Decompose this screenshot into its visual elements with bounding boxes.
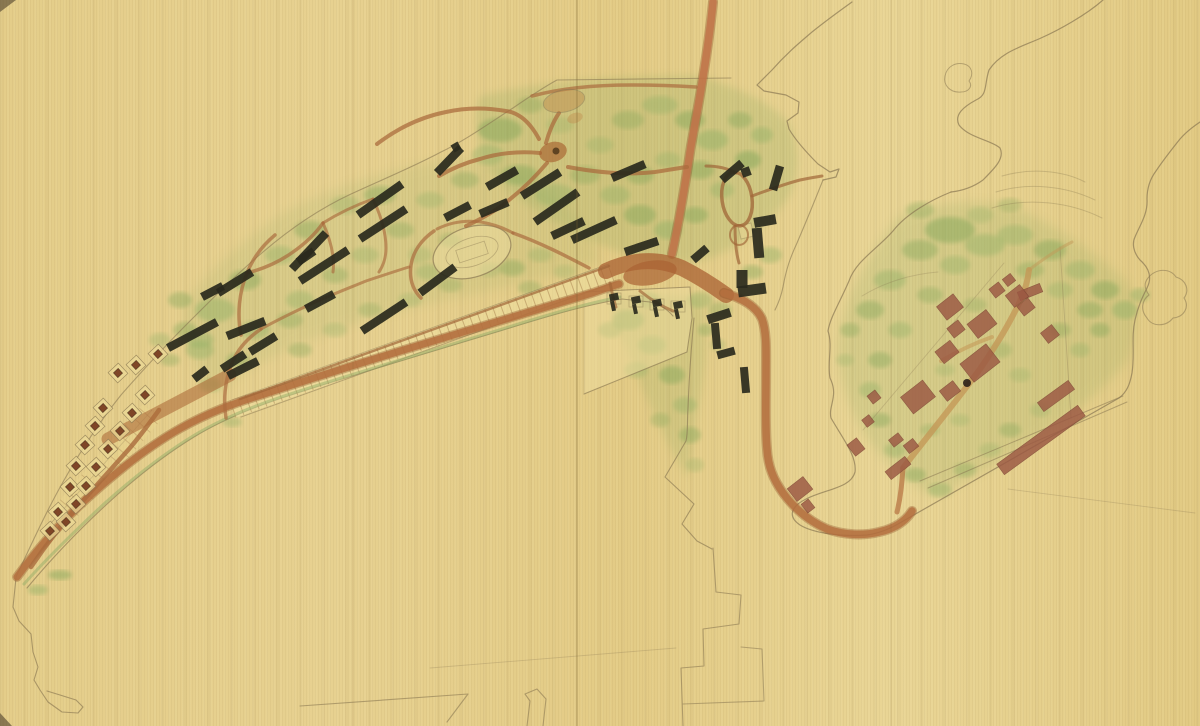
dock-outline-2 [525,689,546,726]
vegetation-blob [1009,368,1031,382]
vegetation-blob [322,267,348,283]
vegetation-blob [1065,261,1095,279]
vegetation-blob [751,127,773,143]
vegetation-blob [288,343,312,357]
corner-mark-bottomleft [0,713,12,726]
vegetation-blob [1070,343,1090,357]
dark-building-rect [737,270,748,288]
vegetation-blob [358,303,382,317]
corner-mark-topleft [0,0,16,12]
vegetation-blob [655,152,681,168]
vegetation-blob [351,247,379,263]
vegetation-blob [1090,323,1110,337]
vegetation-blob [586,137,614,153]
vegetation-blob [902,240,938,260]
junction2-roundabout-dot [553,148,560,155]
dark-building-rect [740,367,750,394]
dock-outline-1 [300,694,468,722]
vegetation-blob [1034,240,1066,260]
vegetation-blob [517,97,543,113]
vegetation-blob [840,323,860,337]
vegetation-blob [1091,281,1119,299]
vegetation-blob [997,225,1033,245]
vegetation-blob [963,298,987,312]
construction-line-2 [1008,489,1195,513]
vegetation-blob [28,585,48,595]
vegetation-blob [1112,301,1138,319]
contour-2 [996,186,1095,200]
island-dark-dot [963,379,971,387]
vegetation-blob [935,364,955,376]
vegetation-blob [1130,288,1150,302]
vegetation-blob [386,222,414,238]
vegetation-blob [696,130,728,150]
site-plan-svg [0,0,1200,726]
vegetation-blob [836,354,854,366]
vegetation-blob [528,248,552,262]
vegetation-blob [917,287,943,303]
vegetation-blob [168,292,192,308]
coast-island-north [951,0,1103,192]
vegetation-blob [478,118,522,142]
vegetation-blob [686,458,704,472]
dark-building-rect [752,228,765,259]
vegetation-blob [600,186,630,204]
vegetation-blob [950,414,970,426]
vegetation-blob [48,570,72,580]
vegetation-blob [323,323,347,337]
vegetation-blob [451,172,479,188]
vegetation-blob [673,397,697,413]
vegetation-blob [967,207,993,223]
vegetation-blob [416,192,444,208]
vegetation-blob [1077,302,1103,318]
corner-mark-layer [0,0,16,726]
vegetation-blob [1047,282,1073,298]
pond-outline [945,64,972,93]
vegetation-blob [888,322,912,338]
vegetation-blob [650,413,670,427]
vegetation-blob [728,112,752,128]
vegetation-blob [856,301,884,319]
scanned-plan-paper [0,0,1200,726]
vegetation-blob [679,427,701,443]
shoreline-sock-cove [13,578,83,713]
dock-outline-3 [681,548,741,726]
vegetation-blob [612,111,644,129]
vegetation-blob [940,256,970,274]
vegetation-blob [642,96,678,114]
dock-outline-4 [683,647,764,704]
vegetation-blob [925,217,975,243]
construction-line-1 [430,648,676,668]
contour-1 [1002,171,1085,182]
vegetation-blob [868,352,892,368]
red-building [847,438,865,456]
vegetation-blob [624,205,656,225]
vegetation-blob [906,202,934,218]
vegetation-blob [999,423,1021,437]
vegetation-blob [659,366,685,384]
vegetation-blob [682,207,708,223]
